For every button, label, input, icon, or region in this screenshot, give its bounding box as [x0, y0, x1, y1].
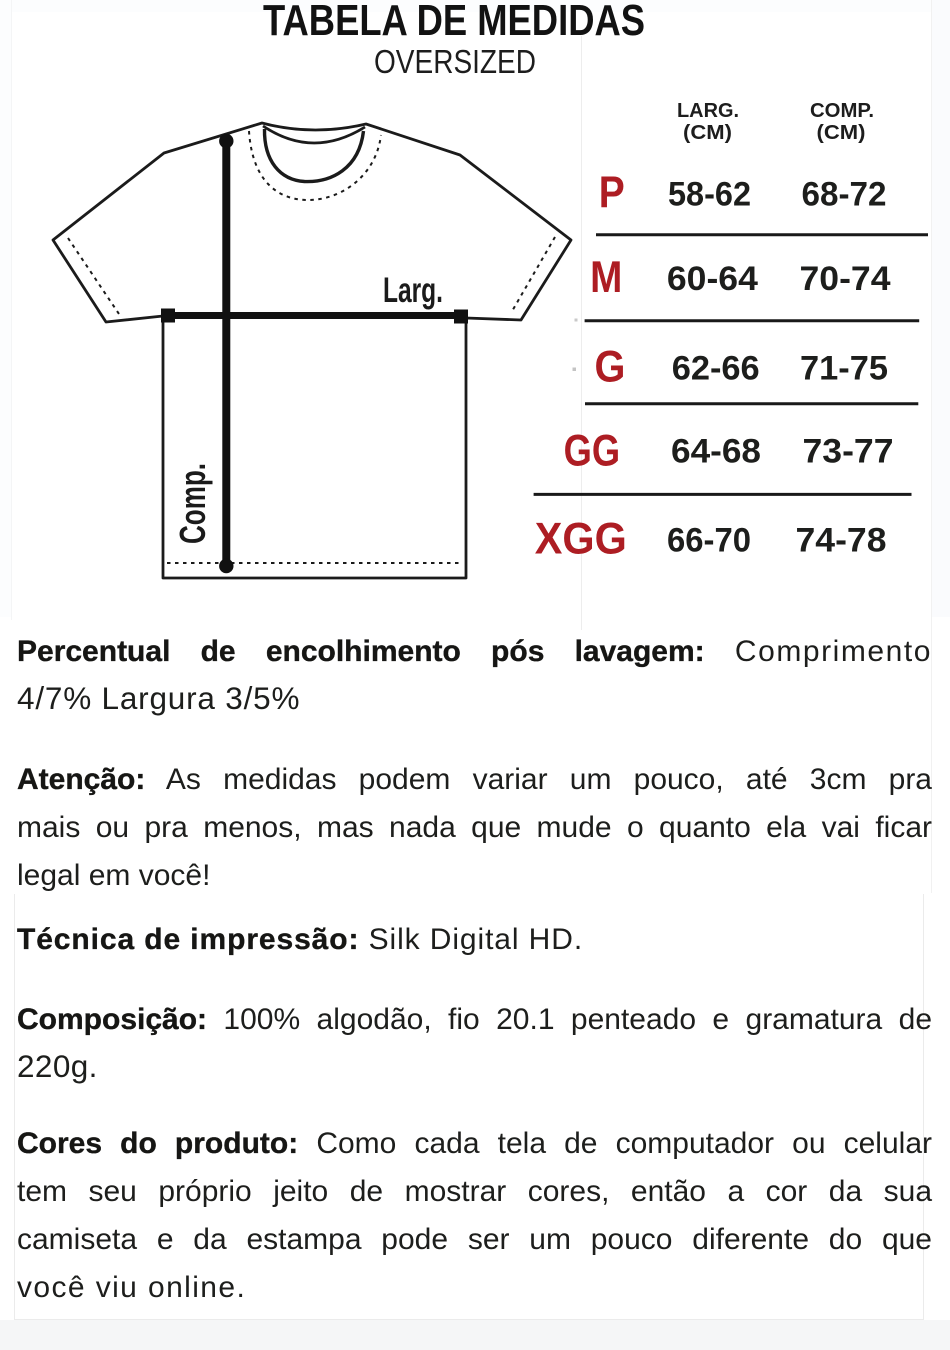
svg-text:58-62: 58-62	[668, 175, 751, 213]
svg-text:P: P	[599, 169, 625, 218]
svg-text:XGG: XGG	[535, 515, 627, 564]
svg-text:73-77: 73-77	[803, 433, 894, 471]
svg-text:LARG.: LARG.	[677, 100, 739, 122]
svg-text:TABELA DE MEDIDAS: TABELA DE MEDIDAS	[263, 0, 645, 45]
svg-text:Larg.: Larg.	[383, 271, 443, 310]
svg-text:62-66: 62-66	[672, 350, 760, 388]
svg-text:66-70: 66-70	[667, 521, 751, 559]
svg-text:GG: GG	[564, 427, 621, 476]
svg-text:(CM): (CM)	[683, 122, 732, 144]
svg-text:M: M	[590, 253, 622, 302]
svg-text:74-78: 74-78	[796, 521, 887, 559]
svg-text:OVERSIZED: OVERSIZED	[374, 44, 536, 81]
svg-text:68-72: 68-72	[802, 175, 887, 213]
svg-text:71-75: 71-75	[800, 350, 888, 388]
svg-text:64-68: 64-68	[671, 433, 761, 471]
svg-text:60-64: 60-64	[667, 260, 758, 298]
svg-text:G: G	[595, 343, 626, 392]
svg-text:COMP.: COMP.	[810, 100, 874, 122]
svg-text:(CM): (CM)	[817, 122, 866, 144]
svg-text:Comp.: Comp.	[172, 463, 213, 544]
svg-text:70-74: 70-74	[800, 260, 891, 298]
